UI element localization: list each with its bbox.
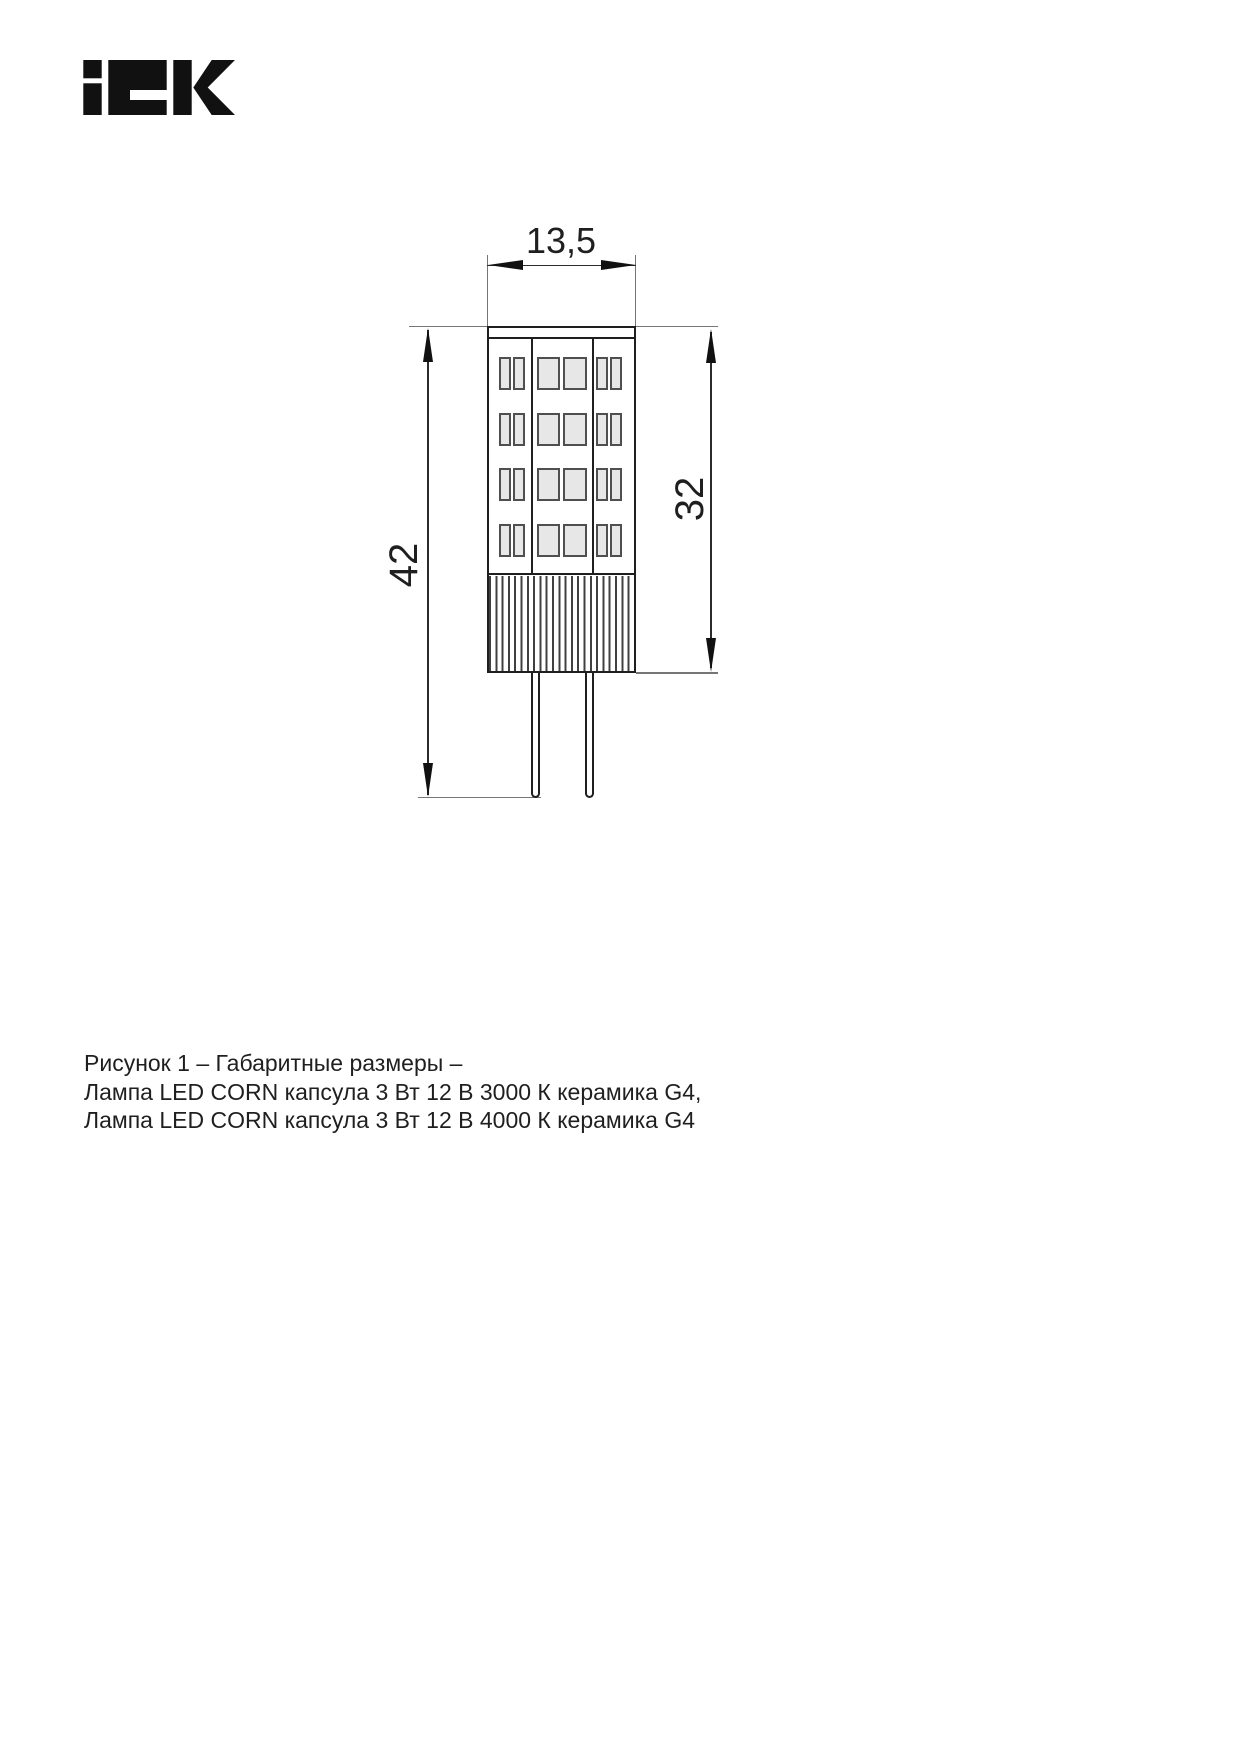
led-chip xyxy=(596,524,608,557)
led-chip xyxy=(537,524,561,557)
led-chip xyxy=(610,357,622,390)
extension-line xyxy=(636,326,718,328)
figure-caption: Рисунок 1 – Габаритные размеры – Лампа L… xyxy=(84,1049,701,1135)
led-chip xyxy=(499,468,511,501)
logo-k-chevron xyxy=(193,60,235,115)
caption-line-3: Лампа LED CORN капсула 3 Вт 12 В 4000 К … xyxy=(84,1106,701,1135)
led-section-bottom-line xyxy=(487,573,636,575)
extension-line xyxy=(636,672,718,674)
led-chip xyxy=(537,468,561,501)
dim-arrow-up-icon xyxy=(423,328,433,362)
dim-total-height-label: 42 xyxy=(382,520,426,610)
ceramic-ribbed-base xyxy=(489,576,634,671)
pin-right xyxy=(585,673,594,798)
logo-i-stem xyxy=(83,83,101,115)
led-chip xyxy=(537,413,561,446)
led-chip xyxy=(563,413,587,446)
led-chip xyxy=(610,524,622,557)
lamp-column-line xyxy=(531,339,533,575)
extension-line xyxy=(409,326,487,328)
logo-e-notch xyxy=(130,90,167,100)
lamp-top-cap-line xyxy=(487,337,636,339)
logo-i-dot xyxy=(83,60,101,78)
dim-body-height-label: 32 xyxy=(668,454,712,544)
datasheet-page: 13,5 42 32 Рисунок 1 – Габаритные размер… xyxy=(0,0,1242,1747)
dim-arrow-up-icon xyxy=(706,329,716,363)
led-chip xyxy=(499,357,511,390)
dim-arrow-down-icon xyxy=(706,638,716,672)
logo-e-block xyxy=(108,60,166,115)
extension-line xyxy=(418,797,541,799)
logo-k-stem xyxy=(173,60,191,115)
led-chip xyxy=(563,524,587,557)
led-chip xyxy=(513,357,525,390)
dim-arrow-down-icon xyxy=(423,763,433,797)
led-chip xyxy=(563,468,587,501)
led-chip xyxy=(610,468,622,501)
led-chip xyxy=(499,413,511,446)
lamp-column-line xyxy=(592,339,594,575)
led-chip xyxy=(596,468,608,501)
dim-width-label: 13,5 xyxy=(491,220,631,262)
led-chip xyxy=(513,524,525,557)
led-chip xyxy=(610,413,622,446)
caption-line-1: Рисунок 1 – Габаритные размеры – xyxy=(84,1049,701,1078)
pin-left xyxy=(531,673,540,798)
caption-line-2: Лампа LED CORN капсула 3 Вт 12 В 3000 К … xyxy=(84,1078,701,1107)
led-chip xyxy=(596,357,608,390)
led-chip xyxy=(563,357,587,390)
led-chip xyxy=(596,413,608,446)
led-chip xyxy=(513,468,525,501)
iek-logo xyxy=(83,58,235,115)
led-chip xyxy=(499,524,511,557)
dimension-line-total-height xyxy=(427,330,429,795)
led-chip xyxy=(537,357,561,390)
led-chip xyxy=(513,413,525,446)
